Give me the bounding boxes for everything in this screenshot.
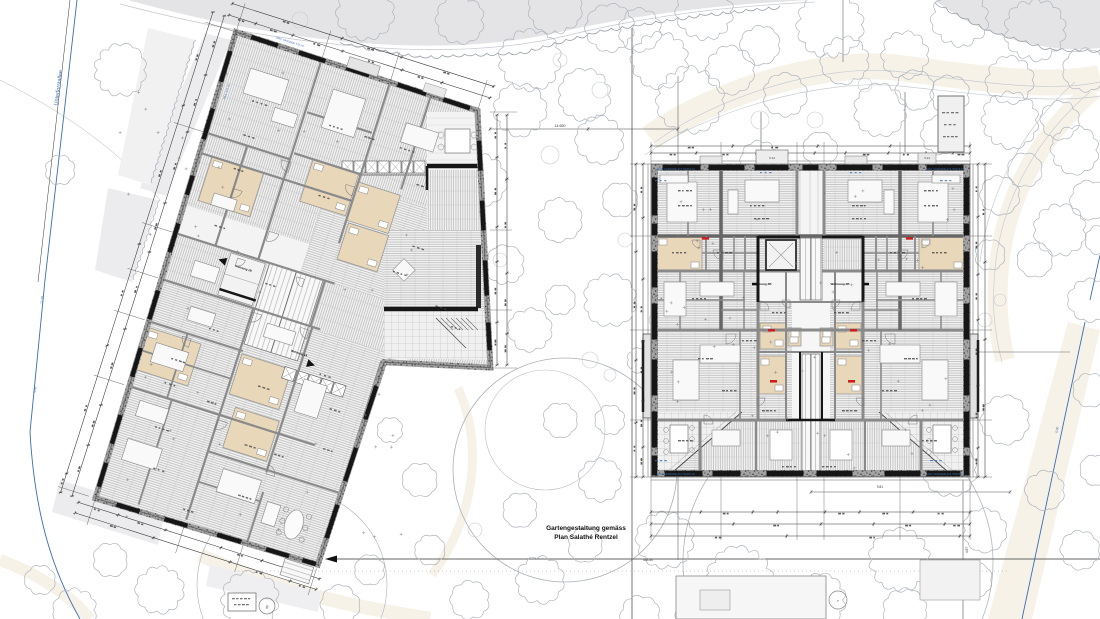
svg-text:Gartengestaltung gemäss: Gartengestaltung gemäss [546, 525, 626, 532]
svg-text:Plan Salathé Rentzel: Plan Salathé Rentzel [554, 534, 618, 541]
svg-text:MAX. FASSADE 471.70/470.10: MAX. FASSADE 471.70/470.10 [926, 472, 964, 476]
svg-text:MAX. FASSADE 471.70/472.10: MAX. FASSADE 471.70/472.10 [657, 167, 695, 171]
svg-text:MAX. FASSADE 471.70/470.10: MAX. FASSADE 471.70/470.10 [657, 472, 695, 476]
svg-text:Wohnung 2B: Wohnung 2B [830, 282, 850, 286]
svg-text:V.14: V.14 [769, 156, 775, 160]
svg-text:9.81: 9.81 [877, 485, 883, 489]
svg-text:14.650: 14.650 [555, 124, 566, 128]
svg-text:4.87: 4.87 [965, 547, 969, 553]
svg-text:V.14: V.14 [924, 156, 930, 160]
svg-text:ø: ø [265, 605, 268, 611]
svg-text:MAX. FASSADE 471.70/472.10: MAX. FASSADE 471.70/472.10 [926, 167, 964, 171]
svg-text:463.50: 463.50 [643, 558, 653, 562]
